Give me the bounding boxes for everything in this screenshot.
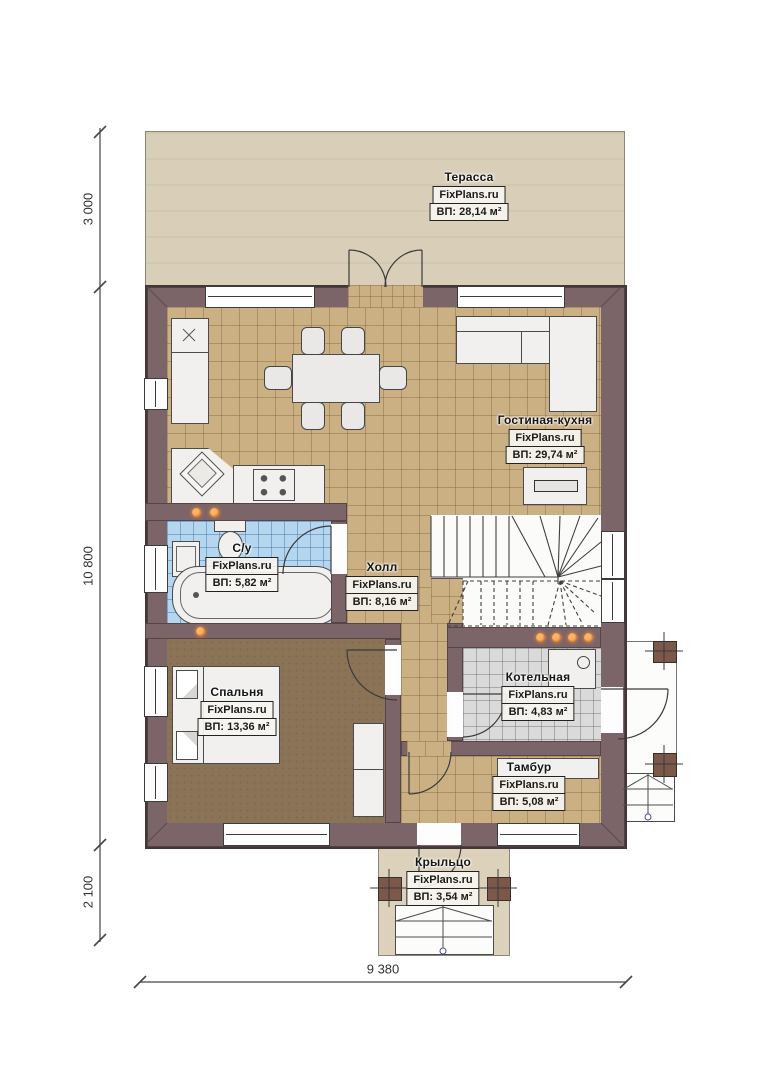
room-label-tambour: Тамбур FixPlans.ru ВП: 5,08 м² — [492, 760, 565, 811]
chair — [301, 402, 325, 430]
window-bedroom-left-1 — [144, 666, 168, 717]
dimension-left-middle: 10 800 — [81, 546, 96, 586]
side-column-top — [653, 641, 677, 663]
room-name: С/у — [232, 541, 251, 555]
chair — [379, 366, 407, 390]
chair — [341, 402, 365, 430]
watermark: FixPlans.ru — [508, 429, 581, 447]
room-area: ВП: 13,36 м² — [198, 718, 277, 736]
boiler-ext-door-opening — [601, 687, 623, 733]
watermark: FixPlans.ru — [406, 871, 479, 889]
room-name: Котельная — [506, 670, 571, 684]
wall-lamp — [196, 627, 205, 636]
room-name: Крыльцо — [415, 855, 471, 869]
room-area: ВП: 29,74 м² — [506, 446, 585, 464]
room-area: ВП: 8,16 м² — [346, 593, 419, 611]
porch-steps — [395, 905, 494, 955]
chair — [341, 327, 365, 355]
wall-lamp — [584, 633, 593, 642]
window-tambour-bottom — [497, 823, 580, 846]
window-top-right — [457, 286, 565, 308]
dimension-left-top: 3 000 — [81, 193, 96, 226]
room-name: Терасса — [445, 170, 494, 184]
window-bedroom-bottom — [223, 823, 330, 846]
wardrobe — [353, 723, 384, 817]
room-label-hall: Холл FixPlans.ru ВП: 8,16 м² — [345, 560, 418, 611]
window-stairs-right-1 — [601, 531, 625, 579]
room-name: Холл — [367, 560, 398, 574]
stairs-lower-zone — [463, 578, 601, 628]
window-stairs-right-2 — [601, 579, 625, 623]
hall-floor-2 — [431, 578, 463, 623]
boiler-dial — [577, 656, 590, 669]
stove — [253, 469, 295, 501]
tv — [534, 480, 578, 492]
wall-lamp — [536, 633, 545, 642]
dimension-left-bottom: 2 100 — [81, 876, 96, 909]
window-top-left — [205, 286, 315, 308]
sofa-cushion-seam — [521, 331, 522, 363]
wardrobe-seam — [354, 769, 383, 770]
room-area: ВП: 3,54 м² — [407, 888, 480, 906]
kitchen-sink-basin — [187, 458, 217, 488]
floor-plan: Терасса FixPlans.ru ВП: 28,14 м² Гостина… — [0, 0, 763, 1080]
porch-column-left — [378, 877, 402, 901]
wall-lamp — [568, 633, 577, 642]
watermark: FixPlans.ru — [200, 701, 273, 719]
room-label-living: Гостиная-кухня FixPlans.ru ВП: 29,74 м² — [498, 413, 593, 464]
side-steps — [623, 773, 675, 822]
window-living-left — [144, 378, 168, 410]
porch-column-right — [487, 877, 511, 901]
room-label-bath: С/у FixPlans.ru ВП: 5,82 м² — [205, 541, 278, 592]
kitchen-counter-left — [171, 352, 209, 424]
fridge — [171, 318, 209, 354]
room-name: Тамбур — [507, 760, 552, 774]
watermark: FixPlans.ru — [432, 186, 505, 204]
room-label-porch: Крыльцо FixPlans.ru ВП: 3,54 м² — [406, 855, 479, 906]
room-area: ВП: 5,82 м² — [206, 574, 279, 592]
window-bath-left — [144, 545, 168, 593]
pillow — [176, 670, 198, 699]
sofa-chaise — [549, 316, 597, 412]
tv-stand — [523, 467, 587, 505]
wall-kitchen-bath — [145, 503, 347, 521]
wall-stairs-boiler — [447, 627, 601, 648]
room-area: ВП: 28,14 м² — [430, 203, 509, 221]
watermark: FixPlans.ru — [501, 686, 574, 704]
wall-lamp — [552, 633, 561, 642]
watermark: FixPlans.ru — [205, 557, 278, 575]
room-area: ВП: 5,08 м² — [493, 793, 566, 811]
bedroom-door-opening — [385, 645, 401, 695]
room-area: ВП: 4,83 м² — [502, 703, 575, 721]
pillow — [176, 731, 198, 760]
chair — [264, 366, 292, 390]
watermark: FixPlans.ru — [492, 776, 565, 794]
side-column-bottom — [653, 753, 677, 777]
terrace-floor — [145, 131, 625, 289]
dimension-bottom: 9 380 — [367, 962, 400, 977]
wall-lamp — [210, 508, 219, 517]
window-bedroom-left-2 — [144, 763, 168, 802]
terrace-door-opening — [348, 285, 423, 308]
watermark: FixPlans.ru — [345, 576, 418, 594]
corridor-floor — [401, 623, 447, 741]
stairs-upper-zone — [431, 515, 601, 579]
wall-bath-bedroom — [145, 623, 401, 639]
room-label-boiler: Котельная FixPlans.ru ВП: 4,83 м² — [501, 670, 574, 721]
dining-table — [292, 354, 380, 403]
front-door-opening — [417, 823, 461, 845]
bathtub-drain — [193, 592, 199, 598]
chair — [301, 327, 325, 355]
boiler-door-opening — [447, 692, 463, 737]
room-name: Спальня — [210, 685, 263, 699]
room-label-bedroom: Спальня FixPlans.ru ВП: 13,36 м² — [198, 685, 277, 736]
wall-lamp — [192, 508, 201, 517]
room-name: Гостиная-кухня — [498, 413, 593, 427]
room-label-terrace: Терасса FixPlans.ru ВП: 28,14 м² — [430, 170, 509, 221]
tambour-door-opening — [407, 741, 451, 756]
